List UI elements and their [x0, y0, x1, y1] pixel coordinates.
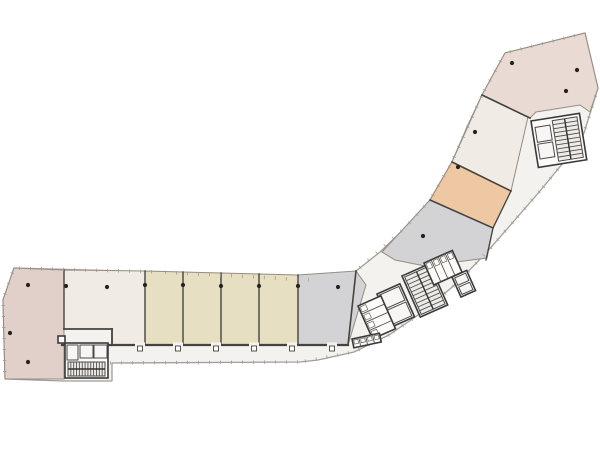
room-tan-2 — [183, 272, 221, 345]
room-large-left — [3, 268, 64, 379]
floor-plan-svg — [0, 0, 600, 450]
core-duct-bottom — [58, 336, 65, 343]
core-stair-top-right — [531, 113, 587, 167]
floorplan-page — [0, 0, 600, 450]
room-tan-1 — [145, 271, 183, 345]
room-tan-3 — [221, 273, 259, 345]
room-tan-4 — [259, 274, 298, 345]
core-stair-bottom-left — [65, 343, 108, 378]
